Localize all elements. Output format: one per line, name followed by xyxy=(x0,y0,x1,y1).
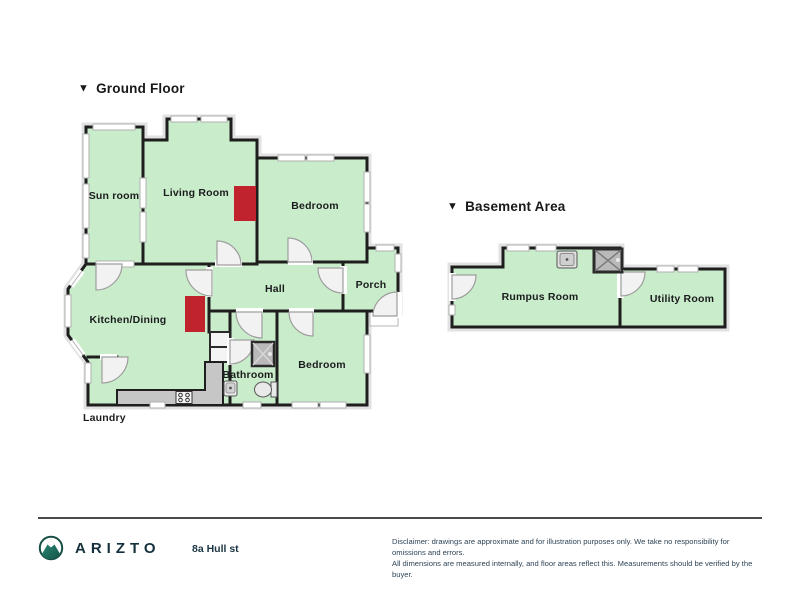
living-room-fireplace xyxy=(234,186,256,221)
room-label-living-room: Living Room xyxy=(163,187,229,199)
toilet-icon xyxy=(255,382,278,397)
ground-floor-plan: Sun room Living Room Bedroom Hall Porch … xyxy=(65,116,402,424)
footer-divider xyxy=(38,517,762,519)
basement-plan: Rumpus Room Utility Room xyxy=(449,245,725,327)
room-label-rumpus-room: Rumpus Room xyxy=(502,291,579,303)
disclaimer-line-2: All dimensions are measured internally, … xyxy=(392,558,760,580)
brand-wordmark: ARIZTO xyxy=(75,540,161,557)
shower-icon xyxy=(252,342,274,366)
basement-footprint xyxy=(452,248,725,327)
floor-plan-drawing: Sun room Living Room Bedroom Hall Porch … xyxy=(0,0,800,600)
room-label-bathroom: Bathroom xyxy=(222,369,273,381)
laundry-tub-icon xyxy=(594,249,622,272)
room-label-hall: Hall xyxy=(265,283,285,295)
basement-sink-icon xyxy=(557,251,577,268)
room-label-sun-room: Sun room xyxy=(89,190,140,202)
brand-logo-row: ARIZTO xyxy=(38,535,161,561)
disclaimer-line-1: Disclaimer: drawings are approximate and… xyxy=(392,536,760,558)
room-label-kitchen-dining: Kitchen/Dining xyxy=(90,314,167,326)
room-label-bedroom-lower: Bedroom xyxy=(298,359,346,371)
stove-icon xyxy=(176,392,192,404)
sink-icon xyxy=(224,381,237,396)
room-label-bedroom-top: Bedroom xyxy=(291,200,339,212)
room-label-laundry: Laundry xyxy=(83,412,126,424)
kitchen-fireplace xyxy=(185,296,205,332)
property-address: 8a Hull st xyxy=(192,543,239,555)
mountain-logo-icon xyxy=(38,535,64,561)
room-label-utility-room: Utility Room xyxy=(650,293,714,305)
disclaimer-text: Disclaimer: drawings are approximate and… xyxy=(392,536,760,580)
floorplan-page: ▼ Ground Floor ▼ Basement Area xyxy=(0,0,800,600)
room-label-porch: Porch xyxy=(356,279,387,291)
